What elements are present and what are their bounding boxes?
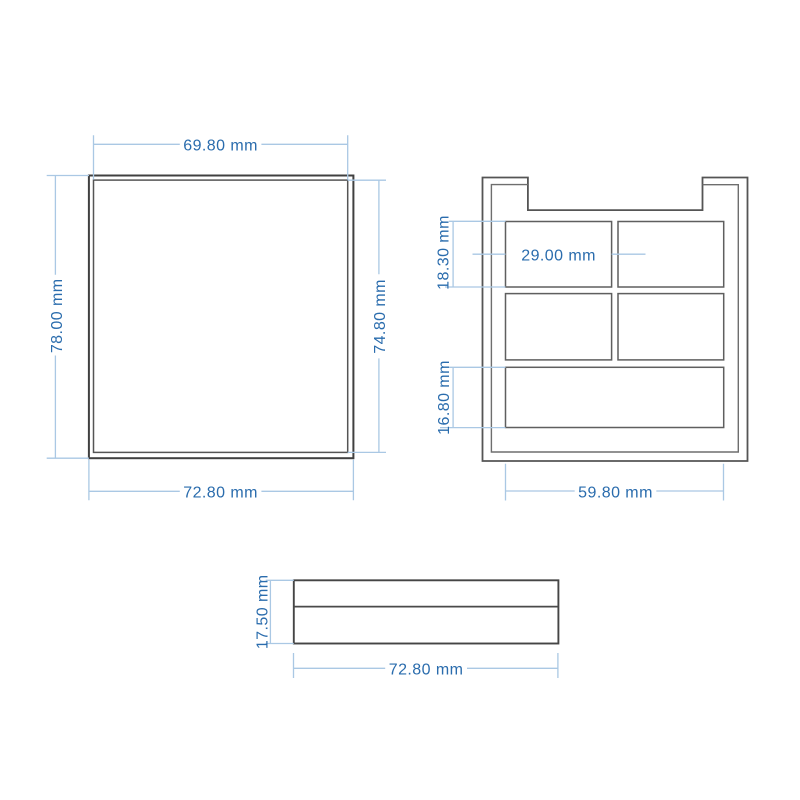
svg-text:72.80 mm: 72.80 mm	[389, 662, 464, 679]
svg-text:29.00 mm: 29.00 mm	[521, 248, 596, 265]
svg-text:18.30 mm: 18.30 mm	[436, 215, 453, 290]
svg-text:78.00 mm: 78.00 mm	[49, 278, 66, 353]
svg-text:17.50 mm: 17.50 mm	[255, 574, 272, 649]
svg-text:59.80 mm: 59.80 mm	[578, 484, 653, 501]
svg-text:72.80 mm: 72.80 mm	[183, 485, 258, 502]
svg-text:74.80 mm: 74.80 mm	[372, 279, 389, 354]
svg-text:16.80 mm: 16.80 mm	[436, 360, 453, 435]
svg-text:69.80 mm: 69.80 mm	[183, 138, 258, 155]
